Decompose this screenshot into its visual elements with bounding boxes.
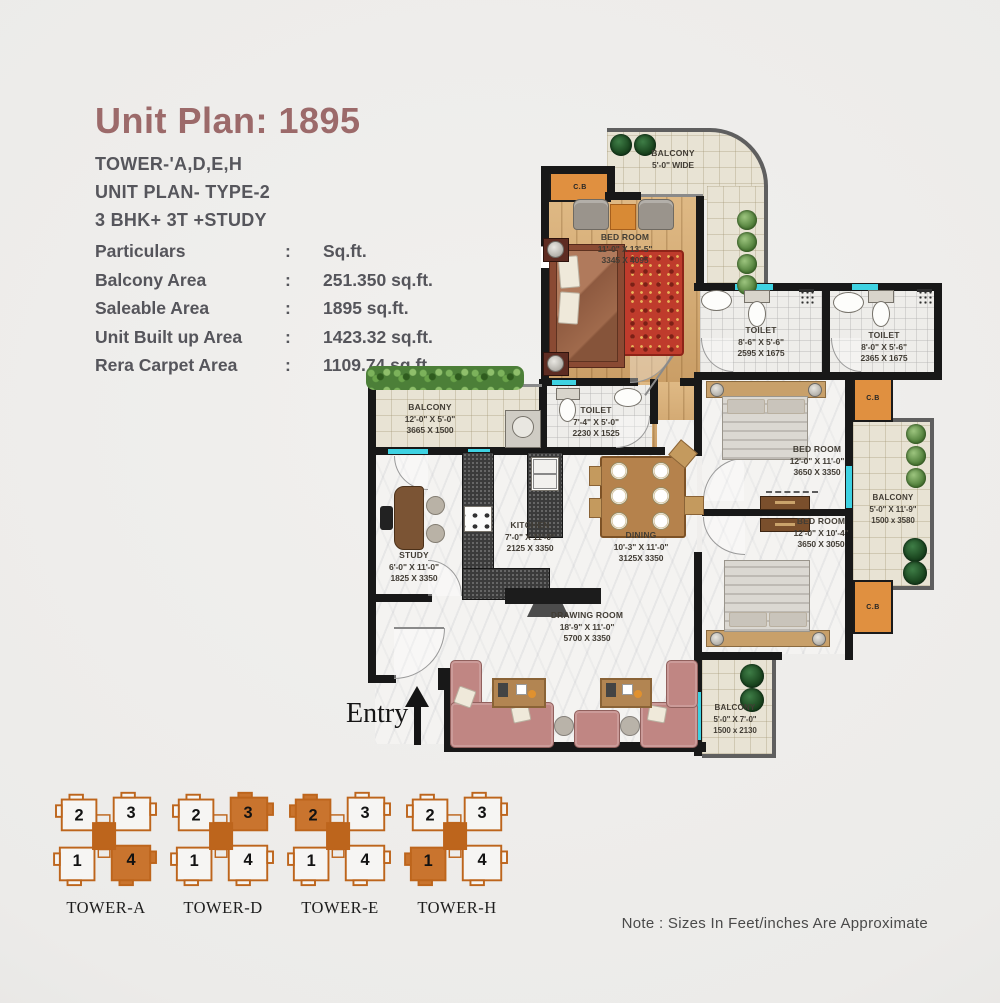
dining-chair bbox=[589, 466, 602, 486]
svg-text:4: 4 bbox=[477, 851, 486, 869]
study-desk bbox=[394, 486, 424, 550]
room-label-drawing-room: DRAWING ROOM 18'-9" X 11'-0" 5700 X 3350 bbox=[528, 610, 646, 645]
tower-plan-icon: 1234 bbox=[404, 788, 510, 888]
tower-key-tower-d: 1234TOWER-D bbox=[169, 788, 277, 918]
tower-key-plans: 1234TOWER-A1234TOWER-D1234TOWER-E1234TOW… bbox=[52, 788, 511, 918]
plant bbox=[740, 664, 764, 688]
lamp bbox=[808, 383, 822, 397]
utility-basin bbox=[512, 416, 534, 438]
room-label-bedroom-2: BED ROOM 12'-0" X 11'-0" 3650 X 3350 bbox=[766, 444, 868, 479]
table-item bbox=[634, 690, 642, 698]
svg-text:3: 3 bbox=[477, 804, 486, 822]
svg-text:1: 1 bbox=[424, 852, 433, 870]
tower-key-tower-h: 1234TOWER-H bbox=[403, 788, 511, 918]
tower-label: TOWER-E bbox=[286, 898, 394, 918]
svg-text:2: 2 bbox=[426, 807, 435, 825]
sink-basin bbox=[533, 474, 557, 489]
lamp bbox=[812, 632, 826, 646]
room-label-kitchen: KITCHEN 7'-0" X 11'-0" 2125 X 3350 bbox=[488, 520, 572, 555]
svg-text:1: 1 bbox=[73, 852, 82, 870]
lamp bbox=[710, 383, 724, 397]
tower-label: TOWER-H bbox=[403, 898, 511, 918]
washbasin bbox=[833, 292, 864, 313]
svg-text:3: 3 bbox=[243, 804, 252, 822]
plant bbox=[903, 561, 927, 585]
plant bbox=[906, 446, 926, 466]
hedge-plants bbox=[366, 366, 524, 390]
unit-plan-page: Unit Plan: 1895 TOWER-'A,D,E,H UNIT PLAN… bbox=[0, 0, 1000, 1003]
footnote: Note : Sizes In Feet/inches Are Approxim… bbox=[598, 915, 928, 932]
svg-text:4: 4 bbox=[243, 851, 252, 869]
room-label-toilet-3: TOILET 7'-4" X 5'-0" 2230 X 1525 bbox=[552, 405, 640, 440]
svg-text:4: 4 bbox=[360, 851, 369, 869]
tower-label: TOWER-D bbox=[169, 898, 277, 918]
svg-text:2: 2 bbox=[309, 807, 318, 825]
table-item bbox=[528, 690, 536, 698]
tower-key-tower-a: 1234TOWER-A bbox=[52, 788, 160, 918]
svg-text:4: 4 bbox=[126, 851, 135, 869]
plate bbox=[652, 462, 670, 480]
room-label-balcony-top: BALCONY 5'-0" WIDE bbox=[615, 148, 731, 171]
table-item bbox=[622, 684, 633, 695]
tv-console bbox=[505, 588, 601, 604]
tower-key-tower-e: 1234TOWER-E bbox=[286, 788, 394, 918]
toilet-bowl bbox=[748, 301, 766, 327]
lamp bbox=[710, 632, 724, 646]
dining-chair bbox=[684, 496, 704, 515]
dining-chair bbox=[589, 498, 602, 518]
cupboard-cb: C.B bbox=[853, 374, 893, 422]
plate bbox=[610, 462, 628, 480]
pillow bbox=[729, 612, 767, 627]
pillow bbox=[727, 399, 765, 414]
shower-icon bbox=[917, 289, 932, 304]
plate bbox=[610, 487, 628, 505]
tower-plan-icon: 1234 bbox=[287, 788, 393, 888]
svg-text:1: 1 bbox=[190, 852, 199, 870]
svg-text:3: 3 bbox=[360, 804, 369, 822]
sofa bbox=[666, 660, 698, 708]
shower-icon bbox=[799, 289, 814, 304]
room-label-toilet-2: TOILET 8'-0" X 5'-6" 2365 X 1675 bbox=[838, 330, 930, 365]
toilet-bowl bbox=[872, 301, 890, 327]
cupboard-cb: C.B bbox=[853, 580, 893, 634]
svg-text:2: 2 bbox=[75, 807, 84, 825]
plant bbox=[903, 538, 927, 562]
lamp bbox=[547, 241, 564, 258]
plant bbox=[737, 210, 757, 230]
sink-basin bbox=[533, 459, 557, 474]
dresser bbox=[760, 496, 810, 510]
room-label-balcony-right: BALCONY 5'-0" X 11'-9" 1500 x 3580 bbox=[855, 492, 931, 527]
desk-chair bbox=[426, 524, 445, 543]
armchair bbox=[638, 199, 674, 230]
room-label-study: STUDY 6'-0" X 11'-0" 1825 X 3350 bbox=[368, 550, 460, 585]
table-item bbox=[606, 683, 616, 697]
room-label-balcony-bottom: BALCONY 5'-0" X 7'-0" 1500 x 2130 bbox=[700, 702, 770, 737]
room-label-toilet-1: TOILET 8'-6" X 5'-6" 2595 X 1675 bbox=[716, 325, 806, 360]
side-table bbox=[610, 204, 636, 230]
svg-text:2: 2 bbox=[192, 807, 201, 825]
sofa bbox=[574, 710, 620, 748]
plant bbox=[737, 232, 757, 252]
desk-chair bbox=[426, 496, 445, 515]
plant bbox=[737, 254, 757, 274]
tower-plan-icon: 1234 bbox=[53, 788, 159, 888]
plant bbox=[906, 424, 926, 444]
tower-label: TOWER-A bbox=[52, 898, 160, 918]
entry-label: Entry bbox=[346, 698, 408, 730]
table-item bbox=[498, 683, 508, 697]
room-label-balcony-left: BALCONY 12'-0" X 5'-0" 3665 X 1500 bbox=[384, 402, 476, 437]
svg-text:1: 1 bbox=[307, 852, 316, 870]
cupboard-cb: C.B bbox=[549, 172, 611, 202]
pillow bbox=[558, 291, 580, 324]
office-chair bbox=[380, 506, 393, 530]
plate bbox=[610, 512, 628, 530]
table-item bbox=[516, 684, 527, 695]
room-label-dining: DINING 10'-3" X 11'-0" 3125X 3350 bbox=[596, 530, 686, 565]
sofa bbox=[450, 702, 554, 748]
lamp bbox=[547, 355, 564, 372]
tower-plan-icon: 1234 bbox=[170, 788, 276, 888]
room-label-master-bedroom: BED ROOM 11'-0" X 13'-5" 3345 X 4095 bbox=[565, 232, 685, 267]
pillow bbox=[769, 612, 807, 627]
plant bbox=[906, 468, 926, 488]
armchair bbox=[573, 199, 609, 230]
side-table-round bbox=[620, 716, 640, 736]
washbasin bbox=[701, 290, 732, 311]
plate bbox=[652, 512, 670, 530]
pillow bbox=[767, 399, 805, 414]
plate bbox=[652, 487, 670, 505]
door-leaf bbox=[394, 627, 444, 629]
side-table-round bbox=[554, 716, 574, 736]
svg-text:3: 3 bbox=[126, 804, 135, 822]
